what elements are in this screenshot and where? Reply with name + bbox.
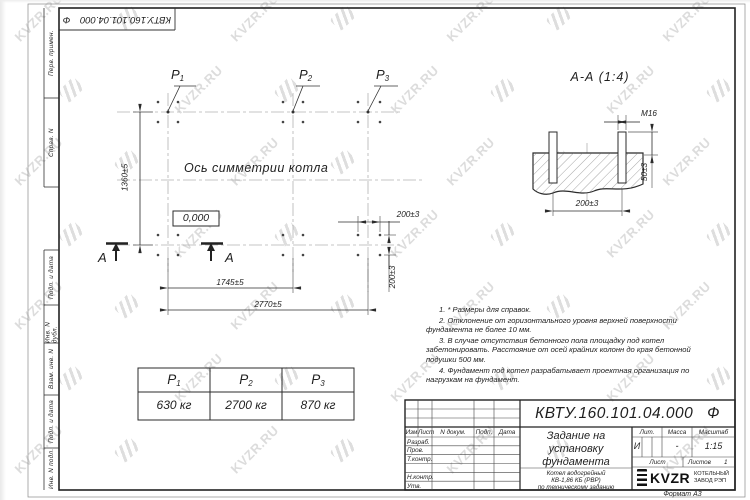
section-view xyxy=(533,132,643,194)
mass-header: Масса xyxy=(662,429,692,436)
load-label-p1: P1 xyxy=(171,67,184,83)
load-p2-sub: 2 xyxy=(308,74,312,83)
dim-200-horizontal: 200±3 xyxy=(390,210,426,219)
dim-200-vertical: 200±3 xyxy=(388,257,400,297)
top-stamp-suffix: Ф xyxy=(63,14,71,25)
section-title: А-А (1:4) xyxy=(550,70,650,84)
center-lines xyxy=(117,93,587,292)
doc-title-line2: установку xyxy=(520,443,632,455)
company-line2: ЗАВОД РЭП xyxy=(694,478,726,484)
dim-2770: 2770±5 xyxy=(233,300,303,309)
load-p1-base: P xyxy=(171,67,180,82)
rev-header-docnum: N докум. xyxy=(432,429,474,436)
top-stamp-number: КВТУ.160.101.04.000 xyxy=(80,14,171,25)
load-table-header-p2: P2 xyxy=(210,372,282,388)
scale-value: 1:15 xyxy=(692,441,735,451)
margin-cell-perv-primen: Перв. примен. xyxy=(45,8,58,98)
role-tkontr: Т.контр. xyxy=(407,456,432,463)
load-label-p3: P3 xyxy=(376,67,389,83)
lit-value: И xyxy=(632,441,642,451)
drawing-sheet: KVZR.RUKVZR.RUKVZR.RUKVZR.RUKVZR.RUKVZR.… xyxy=(0,0,750,500)
mass-value: - xyxy=(662,441,692,451)
table-p3-sub: 3 xyxy=(320,379,324,388)
role-utv: Утв. xyxy=(407,483,421,490)
rev-header-data: Дата xyxy=(494,429,520,436)
role-nkontr: Н.контр. xyxy=(407,474,434,481)
table-p2-sub: 2 xyxy=(248,379,252,388)
dim-50: 50±3 xyxy=(640,152,652,192)
table-p1-base: P xyxy=(167,372,176,387)
load-p2-base: P xyxy=(299,67,308,82)
sheets-value: 1 xyxy=(724,459,728,466)
load-p3-sub: 3 xyxy=(385,74,389,83)
plan-bolt-marks xyxy=(157,101,382,257)
dim-1360: 1360±5 xyxy=(121,154,134,202)
doc-suffix: Ф xyxy=(707,405,720,422)
load-table-header-p1: P1 xyxy=(138,372,210,388)
doc-subtitle-line3: по техническому заданию xyxy=(520,484,632,491)
rev-header-podp: Подп. xyxy=(474,429,494,436)
rev-header-list: Лист xyxy=(418,429,432,436)
table-p2-base: P xyxy=(239,372,248,387)
sheet-label: Лист xyxy=(632,459,683,466)
section-letter-right: А xyxy=(225,250,234,265)
table-p1-sub: 1 xyxy=(176,379,180,388)
doc-subtitle-line1: Котел водогрейный xyxy=(520,470,632,477)
title-block-doc-number: КВТУ.160.101.04.000 Ф xyxy=(522,405,733,423)
section-cut-marks xyxy=(106,243,223,261)
doc-title-line3: фундамента xyxy=(520,456,632,468)
margin-cell-sprav-n: Справ. N xyxy=(45,98,58,187)
load-value-p3: 870 кг xyxy=(282,398,354,412)
note-4: 4. Фундамент под котел разрабатывает про… xyxy=(426,366,718,385)
axis-label: Ось симметрии котла xyxy=(184,161,328,175)
dim-m16: М16 xyxy=(641,109,657,118)
kvzr-logo-icon xyxy=(637,469,647,487)
load-p3-base: P xyxy=(376,67,385,82)
dim-1745: 1745±5 xyxy=(195,278,265,287)
scale-header: Масштаб xyxy=(692,429,735,436)
level-mark: 0,000 xyxy=(173,212,219,224)
doc-number: КВТУ.160.101.04.000 xyxy=(535,405,693,422)
kvzr-logo-text: KVZR xyxy=(650,470,690,486)
load-p1-sub: 1 xyxy=(180,74,184,83)
load-label-p2: P2 xyxy=(299,67,312,83)
sheets-label: Листов xyxy=(688,459,711,466)
lit-header: Лит. xyxy=(632,429,662,436)
load-value-p1: 630 кг xyxy=(138,398,210,412)
margin-cell-inv-podl: Инв. N подл. xyxy=(45,448,58,490)
doc-subtitle-line2: КВ-1,86 КБ (РВР) xyxy=(520,477,632,484)
margin-cell-inv-dubl: Инв. N дубл. xyxy=(45,305,58,343)
doc-title-line1: Задание на xyxy=(520,430,632,442)
note-2: 2. Отклонение от горизонтального уровня … xyxy=(426,316,718,335)
load-leaders xyxy=(167,86,399,114)
margin-cell-vzam-inv: Взам. инв. N xyxy=(45,343,58,395)
section-letter-left: А xyxy=(98,250,107,265)
technical-notes: 1. * Размеры для справок. 2. Отклонение … xyxy=(426,305,718,386)
note-3: 3. В случае отсутствия бетонного пола пл… xyxy=(426,336,718,365)
company-line1: КОТЕЛЬНЫЙ xyxy=(694,471,729,477)
top-stamp: КВТУ.160.101.04.000 Ф xyxy=(61,10,173,28)
role-prov: Пров. xyxy=(407,447,424,454)
table-p3-base: P xyxy=(311,372,320,387)
margin-cell-podp-data-1: Подп. и дата xyxy=(45,250,58,305)
format-label: Формат А3 xyxy=(630,491,735,498)
load-value-p2: 2700 кг xyxy=(210,398,282,412)
role-razrab: Разраб. xyxy=(407,439,430,446)
margin-cell-podp-data-2: Подп. и дата xyxy=(45,395,58,448)
load-table-header-p3: P3 xyxy=(282,372,354,388)
rev-header-izm: Изм xyxy=(405,429,418,436)
dim-200-section: 200±3 xyxy=(557,199,617,208)
note-1: 1. * Размеры для справок. xyxy=(426,305,718,315)
